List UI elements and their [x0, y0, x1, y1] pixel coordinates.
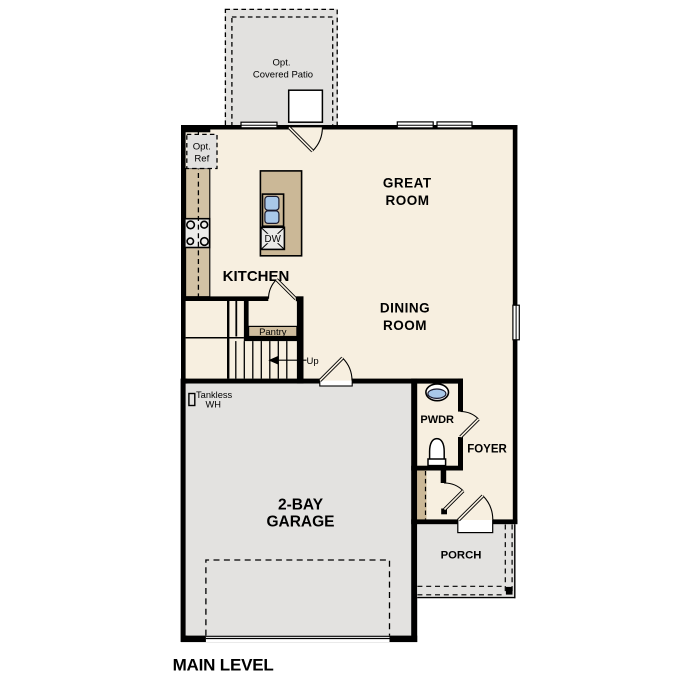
svg-text:ROOM: ROOM: [383, 318, 427, 333]
svg-text:DINING: DINING: [380, 301, 430, 316]
svg-text:FOYER: FOYER: [467, 443, 507, 455]
svg-text:Opt.: Opt.: [273, 58, 291, 69]
svg-text:2-BAY: 2-BAY: [278, 496, 324, 513]
svg-text:PORCH: PORCH: [441, 550, 482, 562]
svg-text:Tankless: Tankless: [196, 390, 233, 400]
svg-text:MAIN LEVEL: MAIN LEVEL: [173, 655, 274, 674]
svg-text:Covered Patio: Covered Patio: [253, 70, 313, 81]
svg-text:DW: DW: [265, 234, 282, 245]
svg-text:PWDR: PWDR: [420, 414, 454, 426]
svg-text:ROOM: ROOM: [386, 193, 430, 208]
svg-text:WH: WH: [206, 399, 222, 409]
svg-text:Up: Up: [307, 356, 319, 367]
svg-text:Pantry: Pantry: [259, 327, 287, 338]
svg-text:Opt.: Opt.: [193, 141, 211, 152]
svg-text:GARAGE: GARAGE: [266, 513, 334, 530]
svg-text:Ref: Ref: [194, 153, 209, 164]
svg-text:GREAT: GREAT: [383, 176, 432, 191]
